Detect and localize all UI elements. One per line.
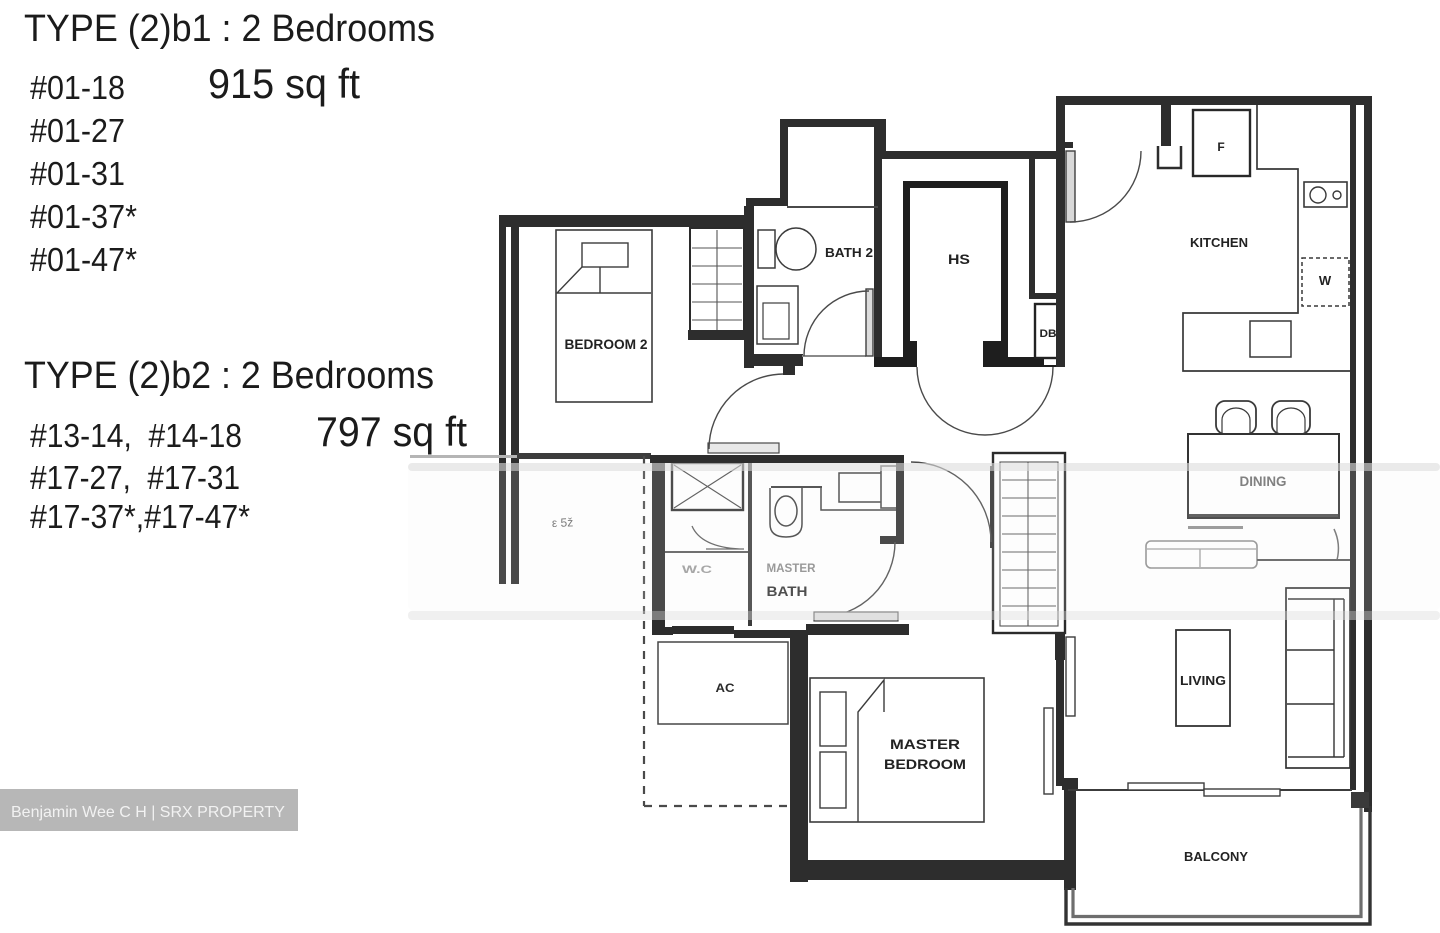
svg-text:#01-47*: #01-47* — [30, 241, 137, 278]
svg-text:LIVING: LIVING — [1180, 674, 1226, 688]
svg-text:#01-37*: #01-37* — [30, 198, 137, 235]
svg-text:TYPE (2)b1 : 2 Bedrooms: TYPE (2)b1 : 2 Bedrooms — [24, 8, 435, 50]
svg-text:DB: DB — [1040, 328, 1057, 340]
svg-text:915 sq ft: 915 sq ft — [208, 60, 360, 107]
svg-text:F: F — [1217, 140, 1224, 154]
svg-text:#17-37*,#17-47*: #17-37*,#17-47* — [30, 498, 250, 535]
svg-text:W: W — [1319, 273, 1332, 288]
svg-text:ε 5ž: ε 5ž — [552, 515, 574, 530]
svg-text:#01-31: #01-31 — [30, 155, 125, 192]
svg-text:#01-18: #01-18 — [30, 69, 125, 106]
svg-text:TYPE (2)b2 : 2 Bedrooms: TYPE (2)b2 : 2 Bedrooms — [24, 355, 434, 397]
svg-text:BEDROOM 2: BEDROOM 2 — [565, 337, 648, 352]
svg-text:AC: AC — [716, 681, 735, 695]
svg-text:#01-27: #01-27 — [30, 112, 125, 149]
svg-text:Benjamin Wee C H | SRX PROPERT: Benjamin Wee C H | SRX PROPERTY — [11, 804, 285, 821]
svg-text:#13-14, #14-18: #13-14, #14-18 — [30, 417, 242, 454]
svg-text:BALCONY: BALCONY — [1184, 849, 1248, 864]
svg-text:HS: HS — [948, 251, 970, 267]
svg-text:BATH 2: BATH 2 — [825, 245, 873, 260]
svg-text:BEDROOM: BEDROOM — [884, 756, 966, 772]
svg-text:#17-27, #17-31: #17-27, #17-31 — [30, 459, 240, 496]
svg-text:KITCHEN: KITCHEN — [1190, 235, 1248, 250]
svg-text:797 sq ft: 797 sq ft — [316, 408, 467, 455]
svg-text:MASTER: MASTER — [890, 736, 960, 752]
